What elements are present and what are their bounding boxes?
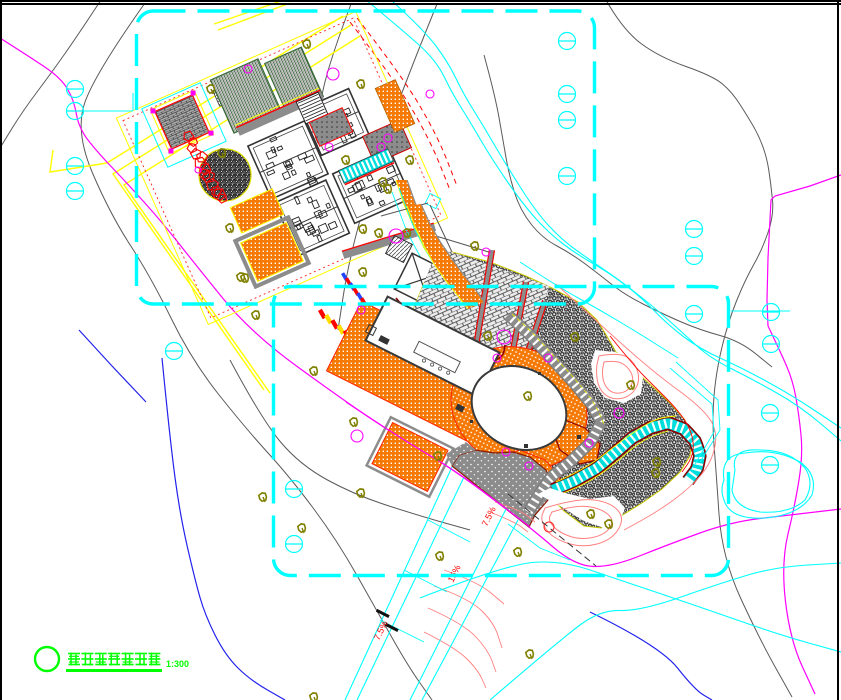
svg-text:1:300: 1:300: [166, 659, 189, 669]
